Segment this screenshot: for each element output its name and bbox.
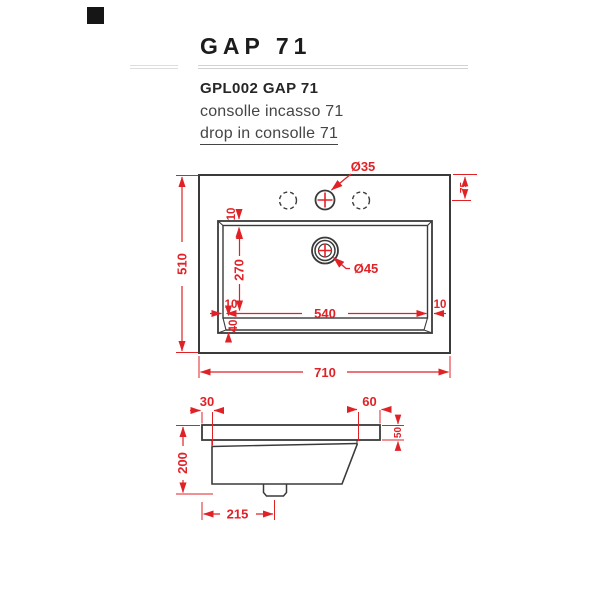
dim-overall-width: 710 [199, 356, 450, 380]
spec-sheet-page: GAP 71 GPL002 GAP 71 consolle incasso 71… [0, 0, 600, 600]
dim-basin-slope-label: 40 [228, 320, 240, 333]
dim-basin-slope: 40 [228, 307, 240, 341]
dim-tap-hole-label: Ø35 [351, 159, 376, 174]
dim-front-edge: 60 [347, 394, 391, 441]
dim-basin-width: 540 [227, 306, 427, 321]
dim-drain-offset-label: 215 [227, 507, 249, 522]
dim-drain-offset: 215 [202, 500, 275, 522]
drain-hole [312, 238, 338, 264]
dim-overall-depth: 510 [175, 176, 199, 353]
side-console-slab [202, 425, 380, 440]
dim-back-edge-label: 30 [200, 394, 214, 409]
dim-rim-left-label: 10 [225, 299, 238, 311]
tap-hole-right-optional [353, 192, 370, 209]
dim-drain-diameter: Ø45 [334, 258, 379, 277]
dim-basin-depth-label: 270 [232, 259, 247, 281]
dim-overall-depth-label: 510 [175, 253, 190, 275]
technical-drawing: Ø35 Ø45 510 710 [0, 0, 600, 600]
side-drain-stub [264, 485, 287, 497]
dim-drain-label: Ø45 [354, 261, 379, 276]
dim-overall-height: 200 [175, 426, 213, 495]
top-view: Ø35 Ø45 510 710 [175, 159, 478, 380]
dim-back-edge: 30 [190, 394, 224, 445]
side-view: 30 60 50 200 [175, 394, 404, 522]
tap-hole-cross-icon [318, 193, 333, 208]
dim-front-height-label: 50 [393, 427, 404, 439]
dim-basin-width-label: 540 [314, 306, 336, 321]
dim-overall-height-label: 200 [175, 452, 190, 474]
dim-rim-right-label: 10 [434, 299, 447, 311]
dim-front-edge-label: 60 [362, 394, 376, 409]
dim-overall-width-label: 710 [314, 365, 336, 380]
dim-tap-offset: 75 [452, 175, 477, 201]
dim-front-height: 50 [382, 415, 404, 450]
side-basin-body [212, 441, 358, 485]
dim-rim-top-label: 10 [226, 208, 238, 221]
dim-tap-offset-label: 75 [459, 182, 470, 194]
dim-rim-right: 10 [434, 299, 447, 314]
tap-hole-left-optional [280, 192, 297, 209]
